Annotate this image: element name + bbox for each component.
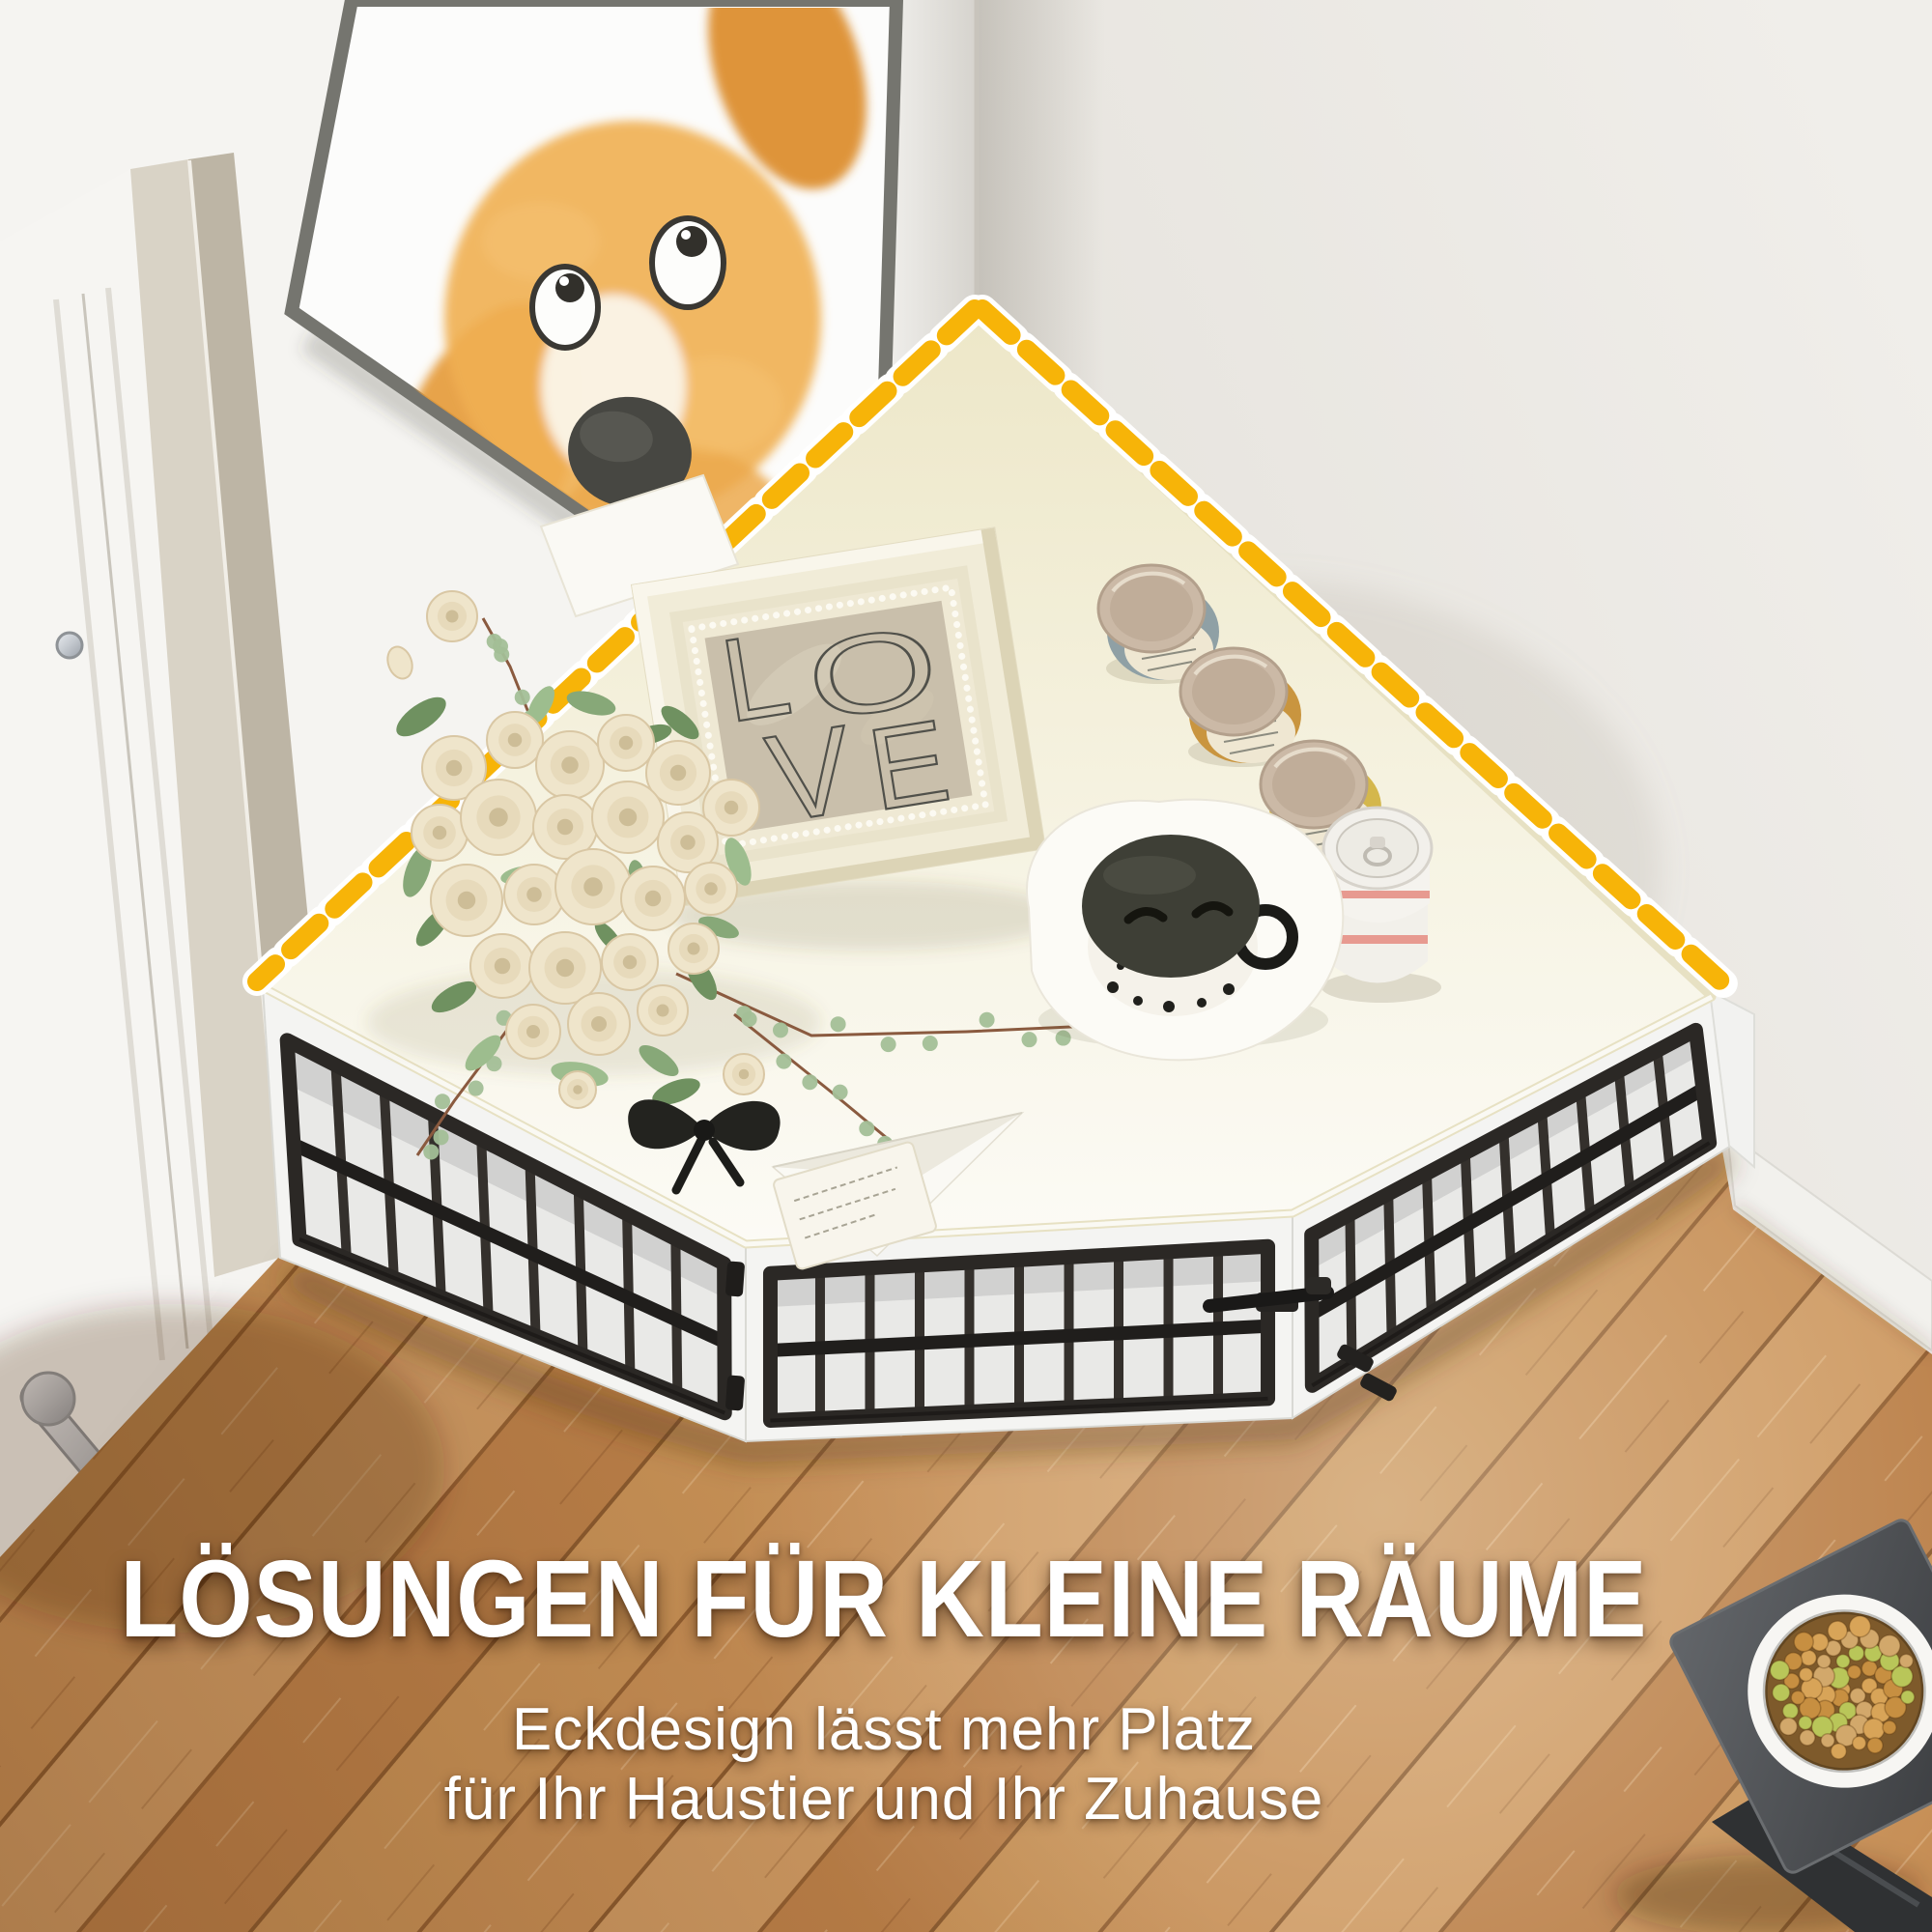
eucalyptus-leaf [742, 1011, 757, 1027]
cat-mug-on-coaster [1027, 800, 1343, 1061]
caption-title: LÖSUNGEN FÜR KLEINE RÄUME [92, 1538, 1675, 1662]
eucalyptus-leaf [773, 1022, 788, 1037]
rose-flower [559, 1071, 596, 1108]
eucalyptus-leaf [881, 1037, 896, 1052]
door-latch-knob [1306, 1277, 1331, 1294]
rose-flower [668, 923, 719, 974]
rose-flower [470, 934, 534, 998]
eucalyptus-leaf [423, 1144, 439, 1159]
rose-flower [638, 985, 688, 1036]
door-hinge-icon [725, 1261, 745, 1296]
eucalyptus-leaf [1022, 1032, 1037, 1047]
eucalyptus-leaf [776, 1054, 791, 1069]
rose-flower [487, 712, 543, 768]
rose-flower [602, 934, 658, 990]
rose-flower [598, 715, 654, 771]
rose-flower [504, 865, 564, 924]
eucalyptus-leaf [515, 690, 530, 705]
eucalyptus-leaf [435, 1094, 450, 1109]
door-hinge-icon [725, 1375, 745, 1410]
rose-flower [412, 805, 468, 861]
door-lock-knob [57, 633, 82, 658]
eucalyptus-leaf [831, 1016, 846, 1032]
product-image: L O V E [0, 0, 1932, 1932]
rose-flower [685, 863, 737, 915]
rose-flower [568, 993, 630, 1055]
mug-lid-cat-face [1082, 835, 1260, 978]
eucalyptus-leaf [802, 1074, 817, 1090]
rose-flower [592, 781, 664, 853]
caption: LÖSUNGEN FÜR KLEINE RÄUME Eckdesign läss… [68, 1538, 1700, 1834]
rose-flower [555, 849, 631, 924]
rose-flower [621, 867, 685, 930]
caption-subtitle-line1: Eckdesign lässt mehr Platz [68, 1695, 1700, 1765]
rose-flower [431, 865, 502, 936]
eucalyptus-leaf [494, 647, 509, 663]
caption-subtitle: Eckdesign lässt mehr Platz für Ihr Haust… [68, 1695, 1700, 1834]
caption-subtitle-line2: für Ihr Haustier und Ihr Zuhause [68, 1765, 1700, 1834]
eucalyptus-leaf [923, 1036, 938, 1051]
eucalyptus-leaf [469, 1081, 484, 1096]
rose-flower [506, 1005, 560, 1059]
rose-flower [461, 780, 536, 855]
eucalyptus-leaf [859, 1121, 874, 1136]
rose-flower [427, 591, 477, 641]
eucalyptus-leaf [833, 1085, 848, 1100]
eucalyptus-leaf [487, 634, 502, 649]
rose-flower [724, 1054, 764, 1094]
rose-flower [536, 731, 604, 799]
eucalyptus-leaf [980, 1012, 995, 1028]
rose-flower [529, 932, 601, 1004]
eucalyptus-leaf [434, 1129, 449, 1145]
